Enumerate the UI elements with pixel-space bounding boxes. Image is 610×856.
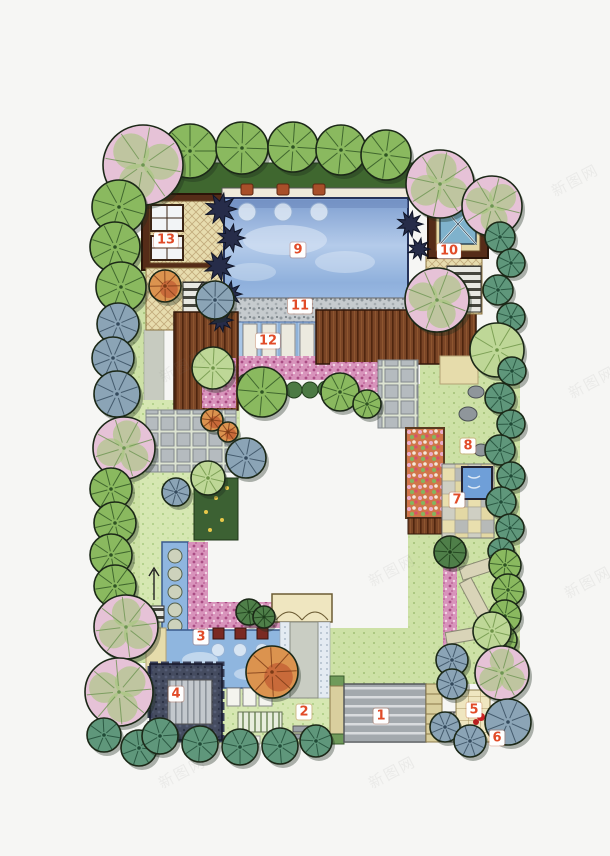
- red-flower: [473, 719, 479, 725]
- pool-highlight: [228, 263, 276, 281]
- plan-label-2: 2: [296, 705, 311, 720]
- gate-pillar-left: [330, 686, 344, 736]
- pool-highlight: [243, 225, 327, 255]
- plan-label-3: 3: [193, 630, 208, 645]
- plan-label-5: 5: [466, 703, 481, 718]
- entry-portal: [272, 594, 332, 622]
- deck-strip-8: [408, 518, 442, 534]
- plan-label-8: 8: [460, 439, 475, 454]
- plan-label-6: 6: [489, 731, 504, 746]
- pool-highlight: [315, 251, 375, 273]
- plan-label-1: 1: [373, 709, 388, 724]
- gate-planting: [330, 676, 344, 686]
- plan-label-10: 10: [437, 244, 461, 259]
- paving-grid-right: [378, 360, 418, 428]
- plan-label-12: 12: [256, 334, 280, 349]
- plan-label-4: 4: [168, 687, 183, 702]
- tree-blossom: [85, 658, 156, 730]
- walkway-border-right: [318, 622, 330, 698]
- garden-plan-page: 12345678910111213 新图网新图网新图网新图网新图网新图网新图网: [0, 0, 610, 856]
- plan-label-9: 9: [290, 243, 305, 258]
- garden-plan-drawing: [0, 0, 610, 856]
- plan-label-11: 11: [288, 299, 312, 314]
- lawn-bottom-right: [330, 628, 430, 686]
- channel-rosettes: [168, 549, 182, 633]
- plan-label-13: 13: [154, 233, 178, 248]
- plan-label-7: 7: [449, 493, 464, 508]
- flower-bed-8: [406, 428, 444, 518]
- tree-bluegray: [226, 438, 269, 482]
